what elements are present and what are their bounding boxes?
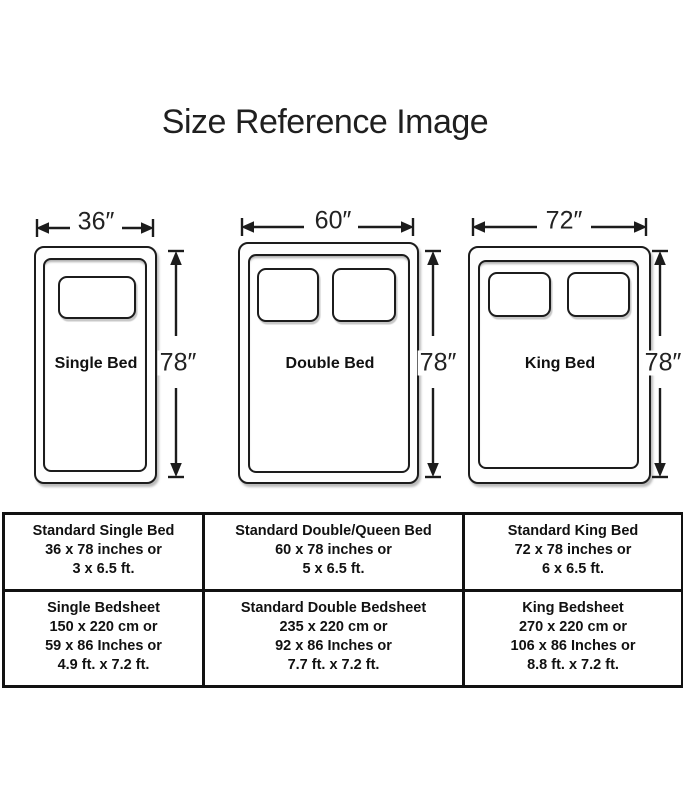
table-cell-line: 72 x 78 inches or (466, 541, 680, 560)
table-cell-single-bedsheet: Single Bedsheet 150 x 220 cm or 59 x 86 … (4, 591, 204, 687)
table-cell-line: Standard King Bed (466, 522, 680, 541)
king-bed-label: King Bed (525, 355, 595, 373)
single-bed-pillow (58, 276, 136, 319)
double-bed-width-label: 60″ (313, 209, 354, 234)
table-cell-line: 106 x 86 Inches or (466, 637, 680, 656)
table-cell-line: 270 x 220 cm or (466, 618, 680, 637)
page-title: Size Reference Image (0, 103, 650, 142)
table-row-bedsheets: Single Bedsheet 150 x 220 cm or 59 x 86 … (4, 591, 683, 687)
size-table: Standard Single Bed 36 x 78 inches or 3 … (2, 512, 683, 688)
table-cell-line: 150 x 220 cm or (6, 618, 201, 637)
table-cell-line: 7.7 ft. x 7.2 ft. (206, 656, 461, 675)
table-cell-standard-king-bed: Standard King Bed 72 x 78 inches or 6 x … (464, 514, 683, 591)
table-cell-king-bedsheet: King Bedsheet 270 x 220 cm or 106 x 86 I… (464, 591, 683, 687)
size-reference-image: Size Reference Image 36″ Single Bed 78″ … (0, 0, 683, 800)
table-cell-line: 8.8 ft. x 7.2 ft. (466, 656, 680, 675)
table-cell-line: Single Bedsheet (6, 599, 201, 618)
table-cell-line: 235 x 220 cm or (206, 618, 461, 637)
table-cell-line: 5 x 6.5 ft. (206, 560, 461, 579)
single-bed-label: Single Bed (55, 355, 138, 373)
king-bed-width-label: 72″ (544, 209, 585, 234)
table-cell-line: 6 x 6.5 ft. (466, 560, 680, 579)
double-bed-pillow-left (257, 268, 319, 322)
table-cell-line: 60 x 78 inches or (206, 541, 461, 560)
table-cell-standard-single-bed: Standard Single Bed 36 x 78 inches or 3 … (4, 514, 204, 591)
double-bed-height-label: 78″ (418, 351, 459, 376)
king-bed-pillow-left (488, 272, 551, 317)
table-cell-line: Standard Single Bed (6, 522, 201, 541)
table-cell-line: 4.9 ft. x 7.2 ft. (6, 656, 201, 675)
table-row-beds: Standard Single Bed 36 x 78 inches or 3 … (4, 514, 683, 591)
king-bed-height-label: 78″ (643, 351, 683, 376)
double-bed-pillow-right (332, 268, 396, 322)
single-bed-width-label: 36″ (76, 210, 117, 235)
table-cell-line: 59 x 86 Inches or (6, 637, 201, 656)
double-bed-label: Double Bed (286, 355, 375, 373)
table-cell-standard-double-bed: Standard Double/Queen Bed 60 x 78 inches… (204, 514, 464, 591)
single-bed-height-label: 78″ (158, 351, 199, 376)
table-cell-line: 3 x 6.5 ft. (6, 560, 201, 579)
table-cell-line: 36 x 78 inches or (6, 541, 201, 560)
table-cell-line: 92 x 86 Inches or (206, 637, 461, 656)
table-cell-line: Standard Double Bedsheet (206, 599, 461, 618)
table-cell-line: King Bedsheet (466, 599, 680, 618)
table-cell-double-bedsheet: Standard Double Bedsheet 235 x 220 cm or… (204, 591, 464, 687)
king-bed-pillow-right (567, 272, 630, 317)
table-cell-line: Standard Double/Queen Bed (206, 522, 461, 541)
